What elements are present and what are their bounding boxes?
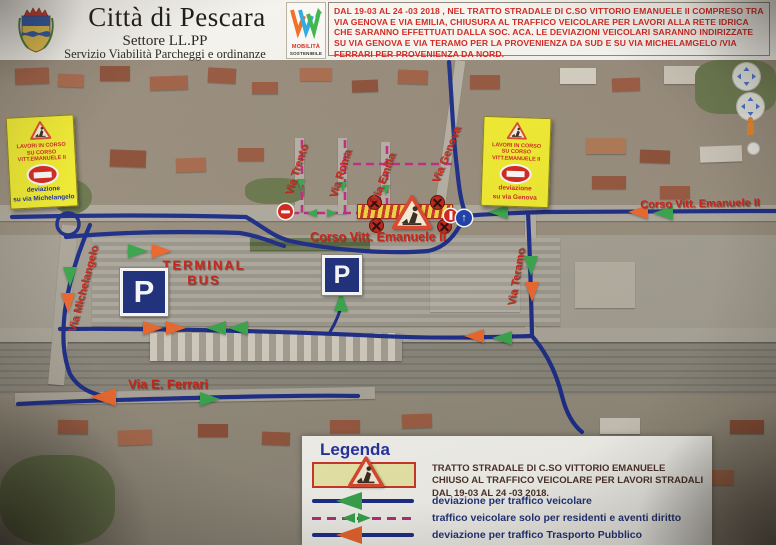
diversion-arrow-green	[228, 321, 248, 335]
map-texture-block	[330, 420, 360, 433]
map-texture-block	[660, 186, 690, 199]
map-texture-block	[730, 420, 764, 434]
orange-arrow-icon	[336, 526, 362, 544]
diversion-arrow-orange	[143, 321, 163, 335]
map-texture-block	[110, 149, 147, 167]
diversion-arrow-green	[307, 209, 317, 217]
map-texture-block	[176, 157, 206, 172]
panel-text: su via Genova	[493, 193, 537, 202]
map-texture-block	[198, 424, 228, 437]
map-texture-block	[262, 432, 290, 446]
diversion-arrow-green	[206, 321, 226, 335]
photographed-traffic-plan: Città di Pescara Settore LL.PP Servizio …	[0, 0, 776, 545]
diversion-arrow-green	[488, 205, 508, 219]
map-texture-block	[640, 149, 670, 163]
diversion-line-symbol	[312, 499, 414, 503]
pan-arrows-icon	[733, 63, 760, 90]
roadworks-sign-icon	[348, 456, 384, 488]
map-texture-block	[238, 148, 264, 161]
terminal-bus-label-line1: TERMINAL	[162, 258, 245, 273]
diversion-arrow-green	[327, 209, 337, 217]
mobility-w-icon	[288, 4, 324, 40]
zoom-control-dot	[748, 143, 759, 154]
map-texture-block	[118, 429, 153, 445]
no-entry-icon	[28, 166, 57, 184]
legend-row-diversion: deviazione per traffico veicolare	[432, 495, 592, 507]
diversion-arrow-orange	[90, 388, 116, 406]
panel-text: su via Michelangelo	[13, 193, 75, 203]
panel-text: LAVORI IN CORSO	[492, 142, 541, 150]
parking-sign: P	[120, 268, 168, 316]
pegman-icon	[747, 122, 754, 135]
diversion-arrow-green	[200, 392, 220, 406]
diversion-arrow-green	[492, 331, 512, 345]
green-arrow-icon	[336, 492, 362, 510]
map-texture-block	[402, 413, 432, 428]
diversion-arrow-orange	[464, 329, 484, 343]
map-texture-block	[208, 67, 237, 83]
map-texture-block	[100, 66, 130, 81]
notice-text: DAL 19-03 AL 24 -03 2018 , NEL TRATTO ST…	[334, 6, 764, 59]
warning-panel-left: LAVORI IN CORSO SU CORSO VITT.EMANUELE I…	[6, 114, 79, 209]
street-label-via-ferrari: Via E. Ferrari	[128, 377, 208, 392]
map-texture-block	[15, 67, 50, 84]
city-title: Città di Pescara	[62, 2, 292, 33]
map-texture-block	[352, 80, 378, 93]
panel-text: SU CORSO VITT.EMANUELE II	[492, 149, 540, 163]
legend-row-transport: deviazione per traffico Trasporto Pubbli…	[432, 529, 642, 541]
warning-panel-right: LAVORI IN CORSO SU CORSO VITT.EMANUELE I…	[480, 116, 551, 208]
panel-text: deviazione	[27, 185, 61, 194]
no-entry-icon	[501, 166, 530, 183]
map-texture-block	[560, 68, 596, 84]
green-arrow-icon	[358, 513, 371, 523]
roadworks-sign-icon	[22, 120, 59, 141]
map-texture-block	[700, 145, 743, 162]
station-building	[150, 333, 402, 361]
roadworks-sign-icon	[499, 121, 536, 140]
street-label-corso-right: Corso Vitt. Emanuele II	[640, 197, 760, 211]
panel-text: SU CORSO VITT.EMANUELE II	[18, 149, 67, 164]
logo-text-line2: SOSTENIBILE	[287, 51, 325, 56]
diversion-arrow-green	[63, 267, 77, 287]
panel-text: deviazione	[498, 185, 531, 193]
transport-line-symbol	[312, 533, 414, 537]
map-texture-block	[600, 418, 640, 434]
map-texture-block	[300, 68, 332, 81]
street-label-corso-center: Corso Vitt. Emanuele II	[310, 230, 446, 244]
map-texture-block	[0, 455, 115, 545]
diversion-arrow-orange	[166, 321, 186, 335]
pan-arrows-icon	[737, 93, 764, 120]
diversion-arrow-orange	[525, 282, 539, 302]
map-texture-block	[592, 176, 626, 189]
map-texture-block	[150, 75, 188, 90]
logo-text-line1: MOBILITÀ	[287, 44, 325, 50]
document-header: Città di Pescara Settore LL.PP Servizio …	[0, 0, 776, 60]
legend-box: Legenda TRATTO STRADALE DI C.SO VITTORIO…	[302, 436, 712, 545]
mandatory-direction-icon: ↑	[456, 210, 472, 226]
diversion-arrow-orange	[152, 244, 172, 258]
legend-row-residents: traffico veicolare solo per residenti e …	[432, 512, 681, 524]
map-texture-block	[470, 75, 500, 89]
roadworks-sign-icon	[392, 195, 432, 230]
map-texture-block	[575, 262, 635, 308]
one-way-icon	[444, 209, 457, 222]
map-texture-block	[612, 78, 640, 92]
no-entry-icon	[278, 204, 293, 219]
map-texture-block	[58, 420, 88, 435]
terminal-bus-label-line2: BUS	[187, 273, 220, 288]
green-arrow-icon	[342, 513, 355, 523]
service-subtitle: Servizio Viabilità Parcheggi e ordinanze	[10, 47, 320, 62]
mobilita-sostenibile-logo: MOBILITÀ SOSTENIBILE	[286, 2, 326, 59]
map-texture-block	[586, 138, 626, 154]
map-texture-block	[252, 82, 278, 94]
diversion-arrow-green	[128, 244, 148, 258]
map-texture-block	[398, 69, 428, 84]
no-transit-icon	[431, 196, 444, 209]
map-texture-block	[58, 74, 84, 88]
road-closure-notice: DAL 19-03 AL 24 -03 2018 , NEL TRATTO ST…	[328, 2, 770, 56]
parking-sign: P	[322, 255, 362, 295]
